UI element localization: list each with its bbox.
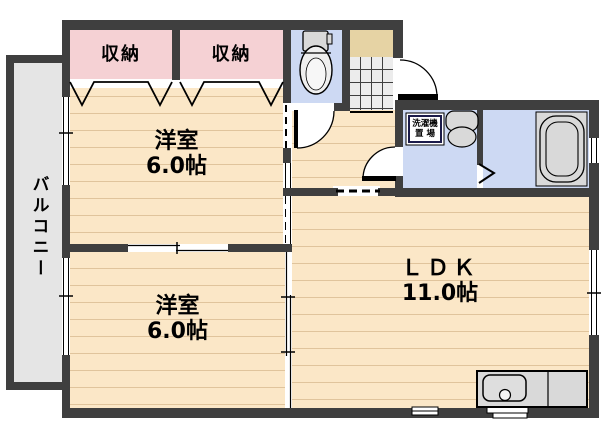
bedroom-bottom-name: 洋室	[155, 295, 199, 320]
washroom-door	[362, 147, 396, 181]
closet-left-label: 収納	[70, 30, 172, 80]
bathtub-fixture	[536, 112, 587, 186]
ldk-name: ＬＤＫ	[401, 257, 479, 282]
ldk-area: 11.0帖	[402, 282, 478, 307]
bedroom-top-area: 6.0帖	[146, 155, 207, 180]
kitchen-counter	[477, 371, 587, 407]
toilet-fixture	[300, 31, 332, 94]
floorplan-canvas: バルコニー 収納 収納 洋室 6.0帖 洋室 6.0帖 ＬＤＫ 11.0帖 洗濯…	[0, 0, 604, 434]
entrance-door	[398, 60, 438, 100]
toilet-door	[294, 110, 334, 148]
bedroom-top-label: 洋室 6.0帖	[70, 125, 283, 185]
bedroom-bottom-label: 洋室 6.0帖	[70, 290, 285, 350]
washbasin-fixture	[446, 111, 478, 147]
washing-machine-space-line2: 置 場	[415, 129, 435, 139]
washing-machine-space-line1: 洗濯機	[412, 119, 438, 129]
bathroom-folding-door	[479, 164, 494, 183]
window-ldk-right	[587, 250, 601, 335]
window-bathroom	[589, 138, 599, 163]
washing-machine-space-label: 洗濯機 置 場	[406, 113, 444, 145]
bedroom-top-name: 洋室	[154, 130, 198, 155]
window-ldk-bottom	[412, 407, 438, 415]
ldk-label: ＬＤＫ 11.0帖	[291, 252, 589, 312]
balcony-label: バルコニー	[14, 120, 62, 335]
closet-right-label: 収納	[180, 30, 283, 80]
bedroom-bottom-area: 6.0帖	[147, 320, 208, 345]
window-kitchen	[487, 407, 528, 418]
